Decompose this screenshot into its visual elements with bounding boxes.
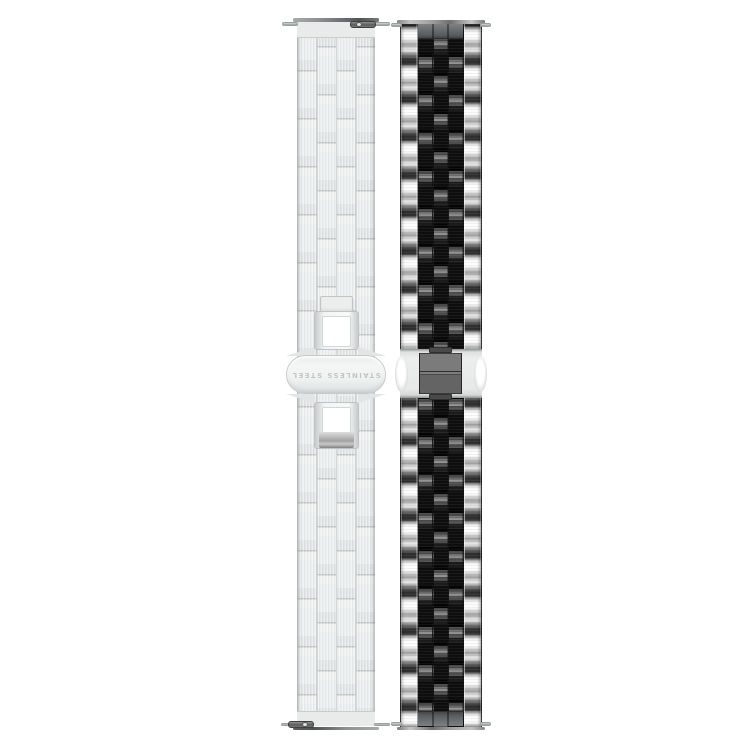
butterfly-clasp-cover: STAINLESS STEEL [286, 355, 386, 394]
spring-bar-pin-top-left [282, 22, 298, 26]
fold-over-clasp [400, 349, 482, 398]
product-photo: STAINLESS STEEL [0, 0, 750, 750]
two-tone-band-end-bar-top [397, 20, 485, 24]
spring-bar-pin-top-right [480, 23, 491, 27]
spring-bar-pin-top-left [391, 23, 402, 27]
clasp-engraving: STAINLESS STEEL [291, 371, 380, 379]
quick-release-knob-icon [302, 722, 308, 727]
clasp-hinge-tab-top [429, 347, 452, 353]
quick-release-tab-top [350, 21, 376, 28]
fold-over-clasp-plate [419, 353, 462, 394]
fitted-end-link-bottom [418, 711, 463, 726]
two-tone-band [400, 20, 482, 730]
quick-release-tab-bottom [288, 721, 314, 728]
clasp-side-bump-right [474, 356, 487, 392]
silver-band: STAINLESS STEEL [297, 18, 375, 730]
clasp-side-bump-left [395, 356, 408, 392]
spring-bar-pin-bottom-right [374, 723, 390, 727]
spring-bar-pin-top-right [374, 22, 390, 26]
two-tone-band-end-bar-bottom [397, 727, 485, 731]
spring-bar-pin-bottom-right [480, 722, 491, 726]
clasp-upper-connector [320, 296, 353, 312]
fitted-end-link-top [418, 24, 463, 39]
clasp-upper-opening [322, 316, 351, 347]
clasp-lower-frame [314, 402, 359, 449]
quick-release-knob-icon [356, 22, 362, 27]
clasp-upper-frame [314, 311, 359, 350]
clasp-push-plate [319, 432, 354, 448]
spring-bar-pin-bottom-left [391, 722, 402, 726]
clasp-hinge-tab-bottom [429, 394, 452, 400]
